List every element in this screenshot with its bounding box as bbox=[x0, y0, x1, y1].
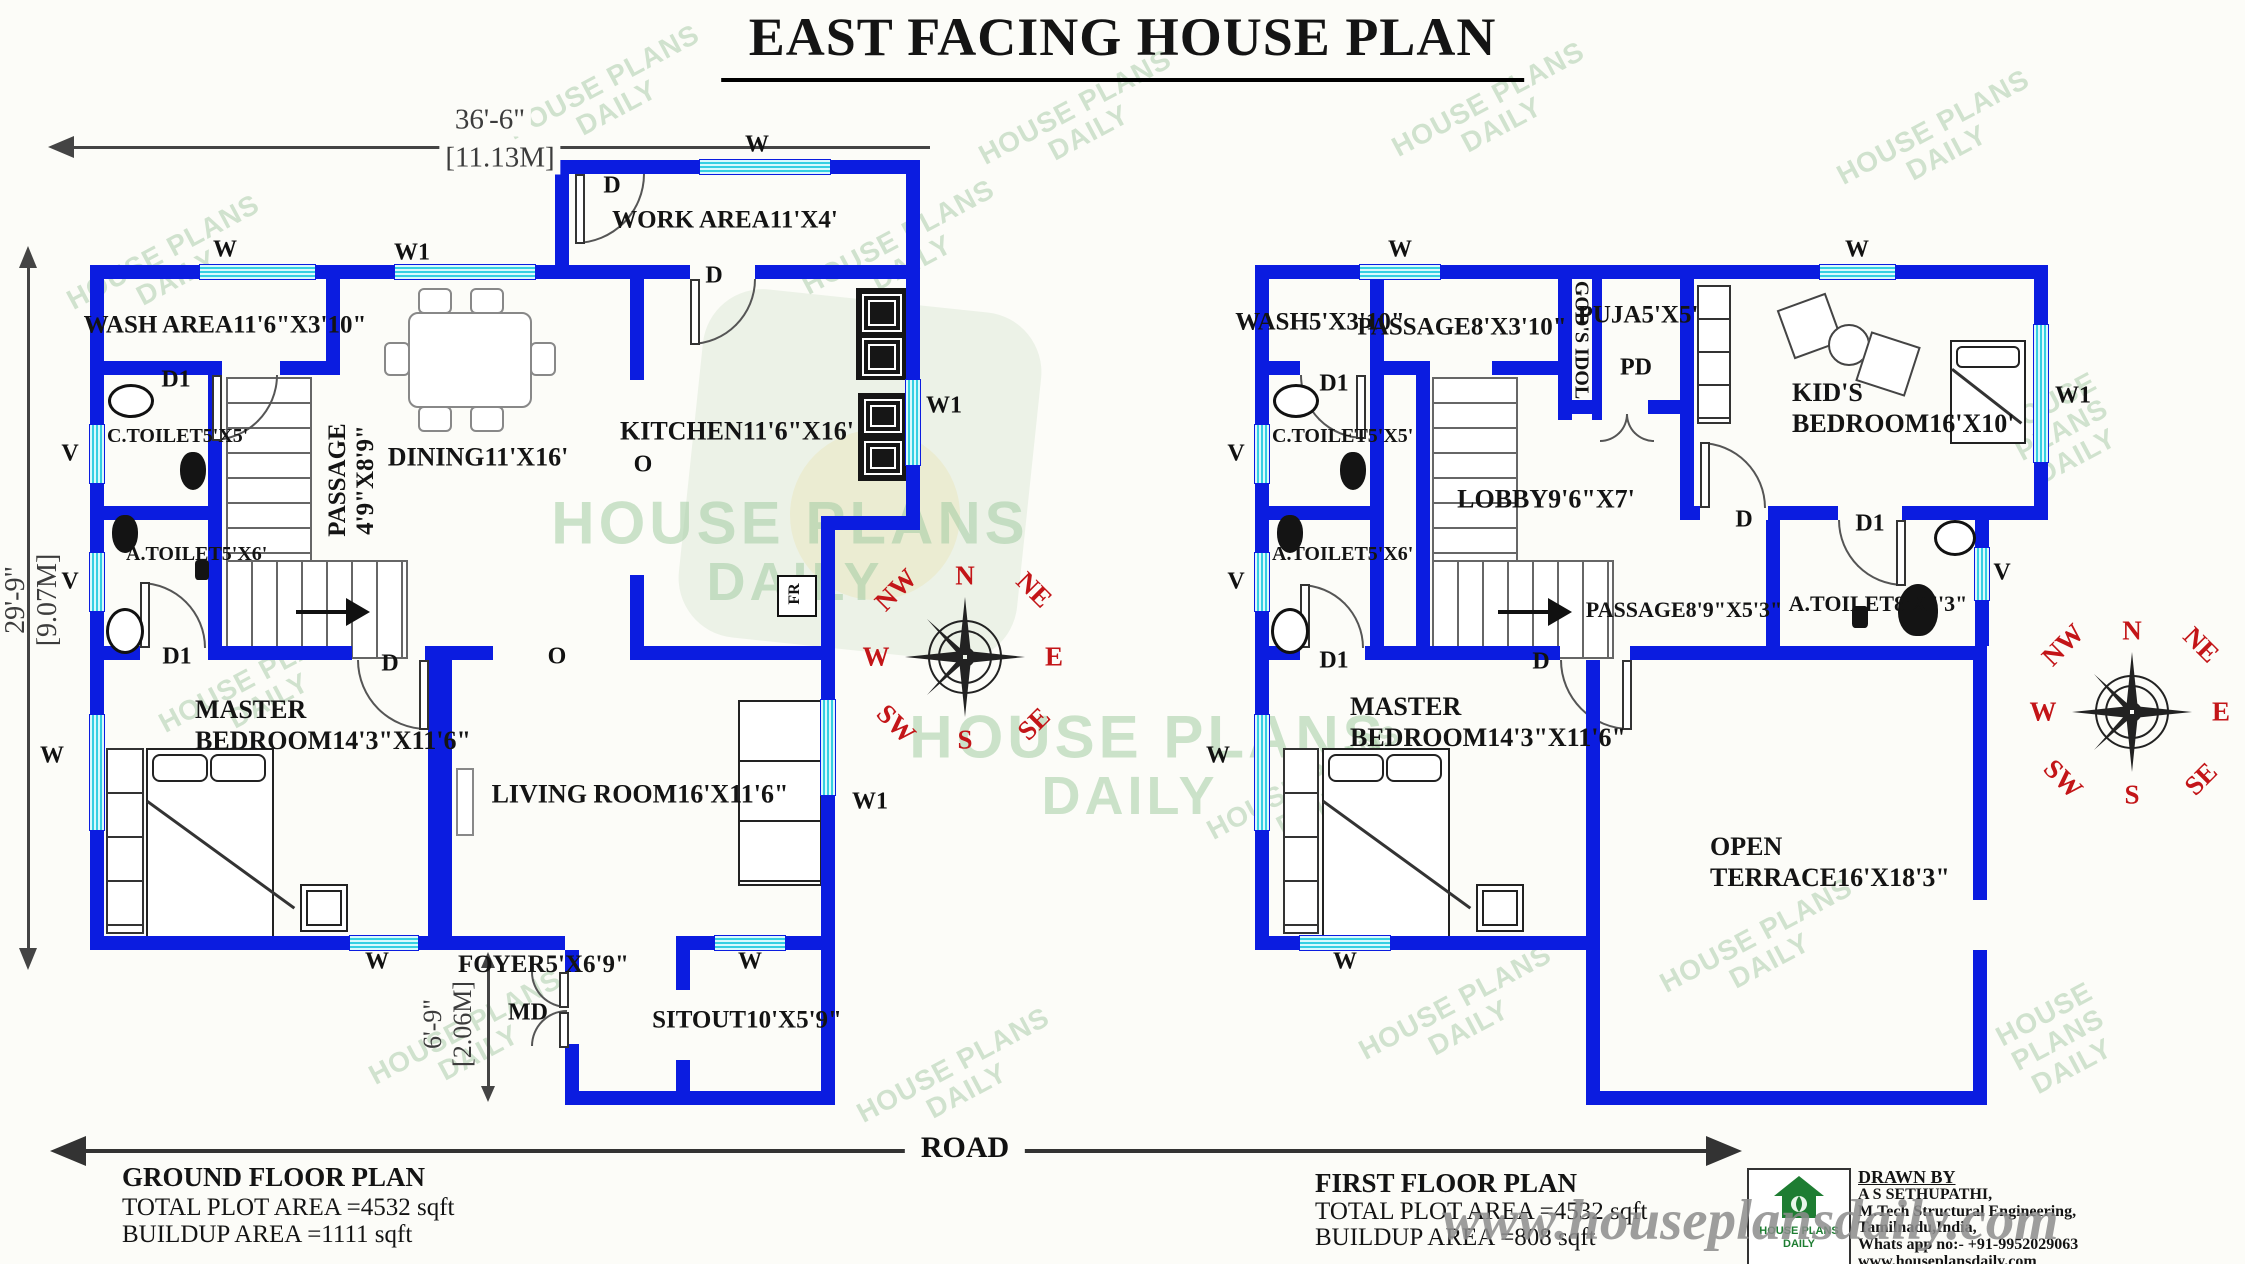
wall bbox=[1586, 1091, 1987, 1105]
gf-label-c-toilet: C.TOILET5'X5' bbox=[107, 425, 248, 449]
brand-watermark: HOUSE PLANSDAILY bbox=[1354, 939, 1570, 1091]
drawn-by-website: www.houseplansdaily.com bbox=[1858, 1254, 2078, 1264]
wall bbox=[630, 575, 644, 646]
wall bbox=[1680, 506, 1700, 520]
wall bbox=[425, 646, 493, 660]
gf-label-passage: PASSAGE4'9"X8'9" bbox=[324, 423, 380, 536]
wall bbox=[569, 265, 690, 279]
gf-footer-title: GROUND FLOOR PLAN bbox=[122, 1162, 425, 1193]
compass-icon bbox=[905, 597, 1025, 717]
wall bbox=[104, 361, 212, 375]
road-line bbox=[85, 1149, 1709, 1153]
door-marker: D1 bbox=[1855, 511, 1884, 538]
ff-label-a-toilet: A.TOILET5'X6' bbox=[1272, 543, 1413, 567]
wall bbox=[1558, 400, 1600, 414]
door-leaf bbox=[1896, 520, 1906, 586]
pillow bbox=[1386, 754, 1442, 782]
site-watermark: www.houseplansdaily.com bbox=[1442, 1188, 2059, 1253]
arrowhead-up-icon bbox=[19, 246, 37, 268]
door-arc bbox=[1626, 414, 1654, 442]
ff-label-puja: PUJA5'X5' bbox=[1578, 300, 1699, 330]
gf-footer-buildup-area: BUILDUP AREA =1111 sqft bbox=[122, 1221, 412, 1249]
ff-label-passage-upper: PASSAGE8'X3'10" bbox=[1357, 312, 1566, 342]
window-marker: W bbox=[745, 132, 769, 159]
ff-label-a-toilet2: A.TOILET8'X5'3" bbox=[1789, 591, 1968, 617]
arrowhead-right-icon bbox=[1706, 1136, 1742, 1166]
chair bbox=[384, 342, 410, 376]
compass-icon bbox=[2072, 652, 2192, 772]
window bbox=[395, 265, 535, 279]
door-marker: D1 bbox=[161, 367, 190, 394]
compass-s: S bbox=[2124, 780, 2139, 811]
window bbox=[700, 160, 830, 174]
door-marker: D1 bbox=[1319, 648, 1348, 675]
stair-direction-line bbox=[296, 610, 348, 614]
toilet-icon bbox=[180, 452, 206, 490]
window bbox=[1255, 425, 1269, 483]
window bbox=[90, 553, 104, 611]
vent-marker: V bbox=[1993, 560, 2010, 587]
door-leaf bbox=[1700, 442, 1710, 508]
dimension-height: 29'-9"[9.07M] bbox=[0, 554, 64, 647]
wall bbox=[1902, 506, 2048, 520]
gf-label-master-bedroom: MASTER BEDROOM14'3"X11'6" bbox=[195, 695, 380, 756]
wall bbox=[1269, 361, 1300, 375]
arrowhead-down-icon bbox=[481, 1086, 495, 1102]
vent-marker: V bbox=[1227, 441, 1244, 468]
wardrobe bbox=[106, 748, 144, 934]
window-marker: W1 bbox=[852, 789, 888, 816]
wall bbox=[1416, 375, 1430, 660]
door-marker: D bbox=[705, 263, 722, 290]
staircase bbox=[1432, 377, 1518, 563]
compass-rose bbox=[2072, 652, 2192, 777]
window bbox=[2034, 325, 2048, 462]
brand-watermark: HOUSE PLANSDAILY bbox=[1832, 64, 2048, 216]
wall bbox=[630, 646, 835, 660]
gf-footer-plot-area: TOTAL PLOT AREA =4532 sqft bbox=[122, 1194, 454, 1222]
gf-label-wash-area: WASH AREA11'6"X3'10" bbox=[84, 310, 367, 340]
window bbox=[90, 425, 104, 483]
counter-detail bbox=[864, 399, 902, 433]
sink-icon bbox=[1273, 384, 1319, 418]
road-label: ROAD bbox=[905, 1131, 1025, 1165]
wall bbox=[676, 950, 690, 990]
door-leaf bbox=[419, 660, 429, 730]
dining-table bbox=[408, 312, 532, 408]
door-leaf bbox=[1622, 660, 1632, 730]
gf-label-kitchen: KITCHEN11'6"X16' bbox=[620, 417, 854, 448]
compass-n: N bbox=[955, 561, 975, 592]
door-leaf bbox=[559, 1012, 569, 1048]
door-arc bbox=[1600, 414, 1628, 442]
stove-burner bbox=[862, 294, 902, 332]
window bbox=[200, 265, 315, 279]
chair bbox=[470, 288, 504, 314]
window-marker: W bbox=[365, 949, 389, 976]
window-marker: W bbox=[1388, 237, 1412, 264]
wall bbox=[1365, 646, 1560, 660]
wall bbox=[906, 160, 920, 530]
main-door-marker: MD bbox=[508, 1000, 548, 1027]
stair-direction-line bbox=[1498, 610, 1550, 614]
gf-label-living-room: LIVING ROOM16'X11'6" bbox=[492, 780, 789, 811]
wall bbox=[565, 1044, 579, 1091]
wall bbox=[676, 1060, 690, 1091]
vent-marker: V bbox=[61, 569, 78, 596]
window-marker: W bbox=[1333, 949, 1357, 976]
dimension-width-ft: 36'-6" bbox=[449, 104, 531, 137]
gf-label-a-toilet: A.TOILET5'X6' bbox=[126, 543, 267, 567]
chair bbox=[418, 288, 452, 314]
wall bbox=[1586, 660, 1600, 950]
rug bbox=[300, 884, 348, 932]
wall bbox=[630, 279, 644, 380]
window bbox=[1975, 548, 1989, 600]
rug bbox=[1476, 884, 1524, 932]
door-marker: D bbox=[1735, 507, 1752, 534]
chair bbox=[530, 342, 556, 376]
door-marker: D bbox=[603, 173, 620, 200]
compass-n: N bbox=[2122, 616, 2142, 647]
ff-label-master-bedroom: MASTER BEDROOM14'3"X11'6" bbox=[1350, 692, 1535, 753]
window-marker: W bbox=[40, 743, 64, 770]
window-marker: W bbox=[738, 949, 762, 976]
window bbox=[1255, 715, 1269, 830]
wall bbox=[1630, 646, 1987, 660]
compass-w: W bbox=[863, 642, 890, 673]
counter-detail bbox=[864, 441, 902, 475]
wall bbox=[1586, 950, 1600, 1105]
door-marker: D bbox=[1532, 649, 1549, 676]
ff-label-passage-lower: PASSAGE8'9"X5'3" bbox=[1586, 597, 1782, 623]
fridge-marker: FR bbox=[786, 583, 804, 604]
pillow bbox=[210, 754, 266, 782]
arrowhead-left-icon bbox=[48, 136, 74, 158]
page-title: EAST FACING HOUSE PLAN bbox=[721, 6, 1525, 82]
stair-arrow-icon bbox=[1548, 598, 1572, 626]
pillow bbox=[152, 754, 208, 782]
chair bbox=[418, 406, 452, 432]
wall bbox=[565, 1091, 835, 1105]
compass-e: E bbox=[1045, 642, 1063, 673]
compass-w: W bbox=[2030, 697, 2057, 728]
wall bbox=[90, 936, 565, 950]
toilet-icon bbox=[1340, 452, 1366, 490]
wardrobe bbox=[1283, 748, 1319, 934]
gf-label-dining: DINING11'X16' bbox=[388, 443, 569, 474]
opening-marker: O bbox=[548, 644, 567, 671]
window bbox=[1360, 265, 1440, 279]
ff-label-c-toilet: C.TOILET5'X5' bbox=[1272, 425, 1413, 449]
door-marker: D bbox=[381, 651, 398, 678]
window-marker: W bbox=[1845, 237, 1869, 264]
wall bbox=[821, 516, 906, 530]
compass-e: E bbox=[2212, 697, 2230, 728]
window bbox=[1820, 265, 1895, 279]
chair bbox=[470, 406, 504, 432]
sink-icon bbox=[108, 384, 154, 418]
puja-door-marker: PD bbox=[1620, 355, 1652, 382]
vent-marker: V bbox=[1227, 569, 1244, 596]
ff-label-open-terrace: OPEN TERRACE16'X18'3" bbox=[1710, 832, 1860, 893]
wall bbox=[1973, 660, 1987, 900]
house-plan-sheet: HOUSE PLANS DAILY HOUSE PLANS DAILY HOUS… bbox=[0, 0, 2245, 1264]
ff-label-kids-bedroom: KID'S BEDROOM16'X10' bbox=[1792, 378, 1932, 439]
opening-marker: O bbox=[634, 452, 653, 479]
dimension-foyer: 6'-9"[2.06M] bbox=[418, 981, 478, 1067]
wall bbox=[1766, 520, 1780, 646]
ff-label-gods-idol: GOD'S IDOL bbox=[1570, 281, 1593, 399]
window bbox=[90, 715, 104, 830]
pillow bbox=[1956, 346, 2020, 368]
compass-s: S bbox=[957, 725, 972, 756]
gf-label-work-area: WORK AREA11'X4' bbox=[612, 205, 838, 235]
brand-watermark: HOUSE PLANS bbox=[551, 489, 1028, 558]
door-marker: D1 bbox=[1319, 371, 1348, 398]
arrowhead-down-icon bbox=[19, 948, 37, 970]
stove-burner bbox=[862, 338, 902, 376]
window-marker: W1 bbox=[394, 240, 430, 267]
sink-icon bbox=[1271, 608, 1309, 654]
sink-icon bbox=[106, 608, 144, 654]
drawn-by-heading: DRAWN BY bbox=[1858, 1168, 2078, 1187]
arrowhead-left-icon bbox=[50, 1136, 86, 1166]
wall bbox=[428, 660, 452, 936]
tv-unit bbox=[456, 768, 474, 836]
wall bbox=[210, 646, 352, 660]
compass-rose bbox=[905, 597, 1025, 722]
brand-watermark: DAILY bbox=[1041, 765, 1218, 827]
window bbox=[1255, 553, 1269, 611]
vent-marker: V bbox=[61, 441, 78, 468]
wall bbox=[1973, 950, 1987, 1105]
dimension-width-m: [11.13M] bbox=[439, 142, 560, 175]
wall bbox=[1975, 520, 1989, 548]
stair-arrow-icon bbox=[346, 598, 370, 626]
wall bbox=[1648, 400, 1680, 414]
window-marker: W bbox=[213, 237, 237, 264]
door-leaf bbox=[575, 174, 585, 244]
door-leaf bbox=[690, 279, 700, 345]
window-marker: W1 bbox=[2055, 383, 2091, 410]
gf-label-foyer: FOYER5'X6'9" bbox=[458, 950, 629, 980]
pillow bbox=[1328, 754, 1384, 782]
window bbox=[906, 380, 920, 465]
brand-watermark: HOUSE PLANSDAILY bbox=[1655, 872, 1871, 1024]
window-marker: W1 bbox=[926, 393, 962, 420]
door-marker: D1 bbox=[162, 644, 191, 671]
wall bbox=[1768, 506, 1838, 520]
gf-label-sitout: SITOUT10'X5'9" bbox=[652, 1005, 842, 1035]
wall bbox=[755, 265, 906, 279]
window bbox=[821, 700, 835, 795]
window-marker: W bbox=[1206, 743, 1230, 770]
sink-icon bbox=[1934, 520, 1976, 556]
wall bbox=[1384, 361, 1430, 375]
ff-label-lobby: LOBBY9'6"X7' bbox=[1457, 485, 1635, 516]
wall bbox=[1975, 600, 1989, 646]
wardrobe bbox=[1697, 285, 1731, 424]
wall bbox=[555, 174, 569, 265]
